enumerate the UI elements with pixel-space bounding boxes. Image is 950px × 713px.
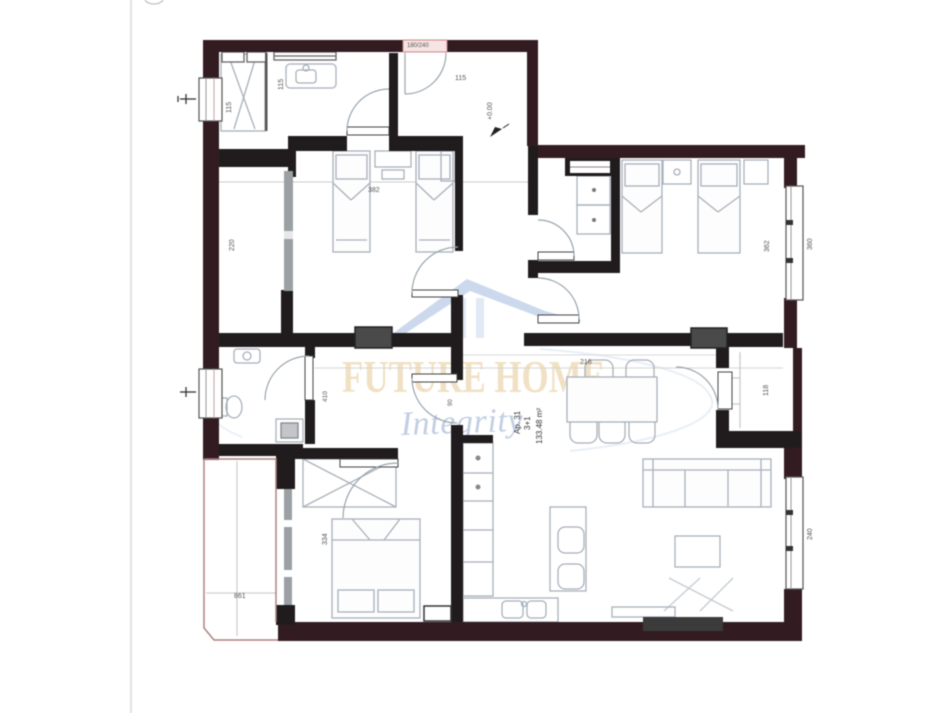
svg-text:90: 90 xyxy=(448,399,454,406)
svg-text:861: 861 xyxy=(234,593,246,600)
svg-text:115: 115 xyxy=(278,79,285,90)
svg-text:115: 115 xyxy=(226,102,233,113)
svg-text:118: 118 xyxy=(763,385,770,396)
svg-text:216: 216 xyxy=(580,359,592,366)
svg-text:360: 360 xyxy=(807,238,814,250)
svg-text:+0.00: +0.00 xyxy=(487,102,494,120)
svg-text:115: 115 xyxy=(455,75,466,82)
svg-text:180/240: 180/240 xyxy=(407,43,429,49)
svg-text:382: 382 xyxy=(368,187,380,194)
svg-text:240: 240 xyxy=(807,528,814,540)
svg-text:410: 410 xyxy=(322,391,329,402)
svg-text:FUTURE HOME: FUTURE HOME xyxy=(342,351,605,402)
svg-text:334: 334 xyxy=(322,533,329,545)
svg-text:362: 362 xyxy=(764,240,771,252)
svg-text:Ap. 31: Ap. 31 xyxy=(513,410,522,434)
svg-text:3+1: 3+1 xyxy=(523,416,532,430)
svg-text:133.48 m²: 133.48 m² xyxy=(535,408,544,444)
svg-text:220: 220 xyxy=(229,239,236,251)
